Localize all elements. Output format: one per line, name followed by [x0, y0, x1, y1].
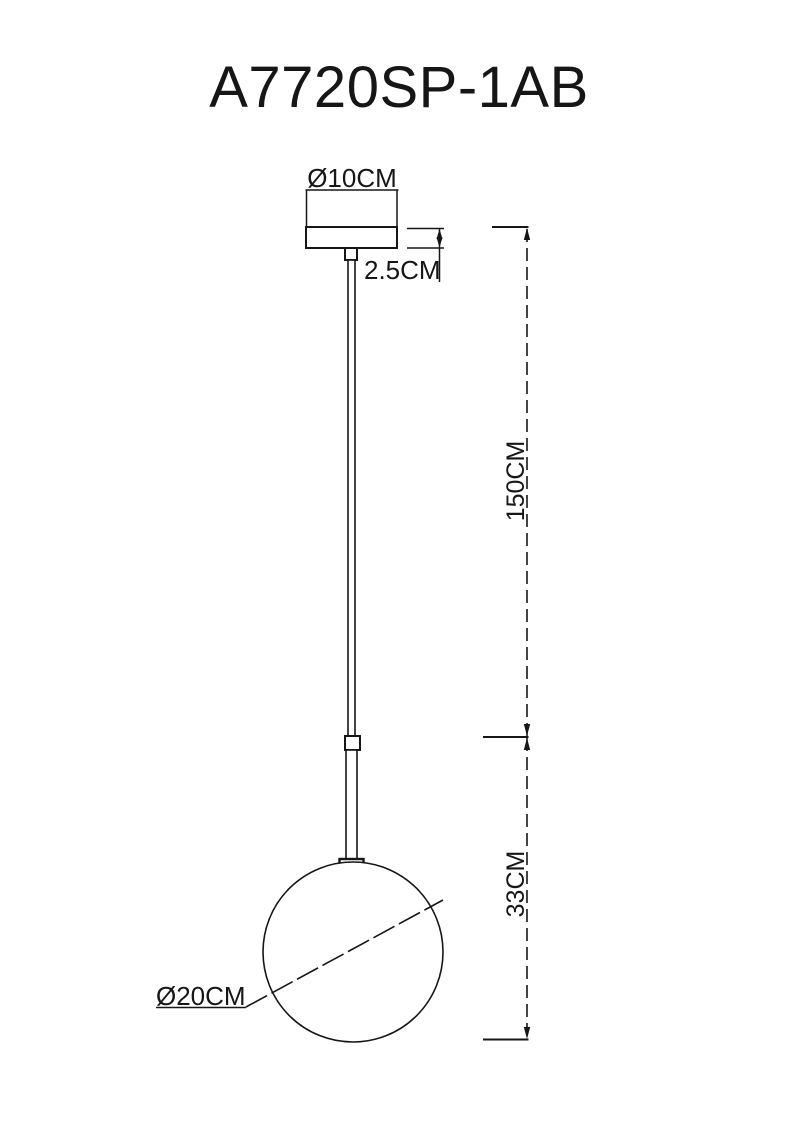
shade-height-arrow-down-icon	[524, 1027, 530, 1039]
dim-canopy-diameter: Ø10CM	[306, 163, 399, 226]
suspension-rod-upper	[348, 260, 355, 736]
globe-diameter-label: Ø20CM	[156, 981, 246, 1011]
ceiling-canopy	[306, 227, 397, 248]
canopy-diameter-label: Ø10CM	[307, 163, 397, 193]
product-title: A7720SP-1AB	[209, 55, 589, 120]
suspension-rod-lower	[346, 750, 357, 859]
canopy-height-arrow-down-icon	[437, 238, 443, 248]
dim-suspension-length: 150CM	[492, 227, 530, 736]
pendant-fixture	[263, 227, 443, 1042]
drawing-page: A7720SP-1AB Ø10CM	[0, 0, 794, 1123]
glass-globe	[263, 862, 443, 1042]
rod-coupler	[345, 736, 360, 750]
dim-shade-height: 33CM	[483, 737, 530, 1040]
canopy-stem	[345, 248, 357, 260]
technical-drawing: A7720SP-1AB Ø10CM	[0, 0, 794, 1123]
shade-height-label: 33CM	[502, 851, 530, 918]
suspension-length-label: 150CM	[502, 441, 530, 522]
suspension-length-arrow-up-icon	[524, 228, 530, 240]
shade-height-arrow-up-icon	[524, 738, 530, 750]
suspension-length-arrow-down-icon	[524, 724, 530, 736]
canopy-height-label: 2.5CM	[364, 255, 441, 285]
